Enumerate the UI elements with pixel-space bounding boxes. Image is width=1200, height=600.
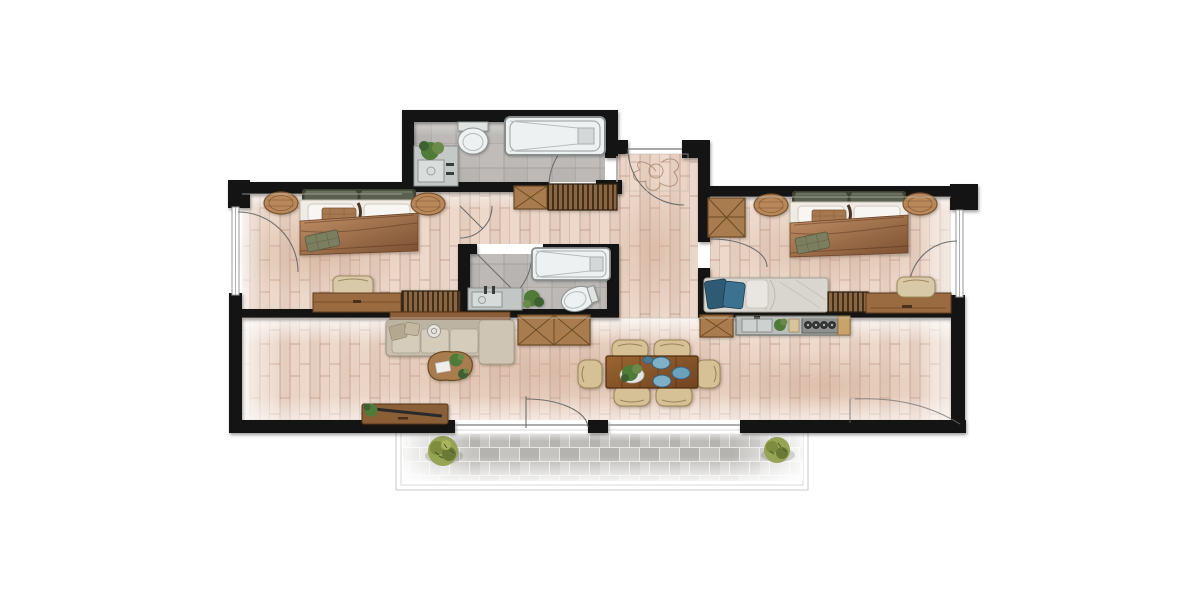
slatted-bench-2: [828, 292, 868, 312]
sideboard-x2: [518, 315, 590, 345]
window-left: [232, 207, 239, 295]
wall-right-lower: [951, 295, 965, 432]
wall-bathroom1-left: [402, 110, 414, 192]
hallway-furniture: [514, 184, 617, 210]
double-bed-1: [300, 189, 418, 255]
cutting-board: [789, 319, 799, 332]
bathtub-2: [532, 248, 610, 280]
tv-console: [362, 404, 448, 425]
daybed: [704, 278, 828, 312]
floor-plan-canvas: [0, 0, 1200, 600]
slatted-sideboard: [548, 184, 617, 210]
sofa-chaise: [479, 320, 514, 364]
coffee-table: [428, 352, 472, 381]
nightstand-2-right: [903, 193, 937, 215]
dining-chair-3: [614, 386, 650, 406]
kitchen-counter: [736, 316, 850, 335]
wall-corner-top-right: [950, 184, 978, 210]
floor-plan-svg: [0, 0, 1200, 600]
stove: [802, 318, 838, 333]
dresser-1: [313, 293, 401, 312]
counter-wood-end: [838, 316, 850, 335]
dining-chair-4: [656, 386, 692, 406]
vanity-sink-1: [414, 141, 458, 186]
wall-entry-stub-left: [612, 140, 628, 154]
nightstand-1-left: [264, 192, 298, 214]
window-right: [956, 210, 963, 297]
sideboard-x: [514, 186, 547, 209]
double-bed-2: [790, 191, 908, 257]
toilet-1: [458, 122, 488, 154]
dining-chair-6: [696, 360, 720, 388]
vanity-sink-2: [468, 286, 522, 310]
wall-bottom-right: [740, 420, 966, 433]
wall-bottom-stub: [588, 420, 608, 433]
nightstand-1-right: [411, 193, 445, 215]
bathtub-1: [505, 117, 605, 155]
terrace: [396, 430, 808, 490]
desk-chair: [897, 277, 935, 297]
wardrobe-x: [708, 198, 745, 237]
slatted-cabinet-1: [402, 291, 460, 312]
dining-chair-5: [578, 360, 602, 388]
dining-table: [606, 356, 698, 388]
